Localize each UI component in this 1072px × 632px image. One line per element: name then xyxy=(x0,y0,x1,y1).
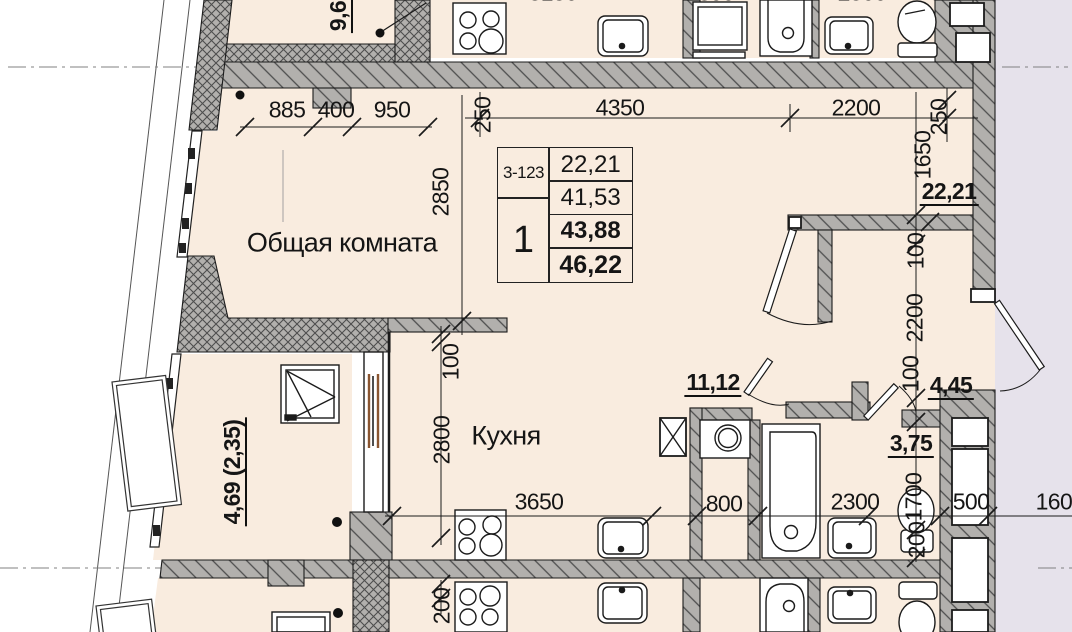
area-label-bathroom: 3,75 xyxy=(888,432,934,458)
dim-500: 500 xyxy=(953,491,990,514)
dim-1700: 1700 xyxy=(903,473,926,522)
washing-machine-icon xyxy=(700,420,750,458)
door-hinge-dot xyxy=(333,608,343,618)
dim-200-bottom: 200 xyxy=(431,588,454,625)
dim-1650: 1650 xyxy=(912,131,935,180)
bathtub-icon xyxy=(760,0,812,56)
area-value: 41,53 xyxy=(548,180,633,215)
window-icon xyxy=(272,612,330,632)
sink-icon xyxy=(598,583,647,623)
floor-plan-page: 3-123 1 22,21 41,53 43,88 46,22 Общая ко… xyxy=(0,0,1072,632)
stove-icon xyxy=(453,3,506,54)
dim-250-left: 250 xyxy=(472,97,495,134)
dim-3650: 3650 xyxy=(515,491,564,514)
apartment-number: 3-123 xyxy=(497,147,550,199)
area-value: 22,21 xyxy=(548,147,633,182)
window-icon xyxy=(281,365,339,423)
dim-400: 400 xyxy=(318,99,355,122)
stove-icon xyxy=(455,582,507,632)
area-label-kitchen: 11,12 xyxy=(684,371,741,397)
dim-4350: 4350 xyxy=(596,97,645,120)
dim-1600: 1600 xyxy=(1036,491,1072,514)
door-hinge-dot xyxy=(332,517,342,527)
sink-icon xyxy=(828,518,876,558)
area-label-living: 22,21 xyxy=(920,180,979,206)
dim-800-clipped: 800 xyxy=(698,0,735,5)
dim-2200: 2200 xyxy=(832,97,881,120)
dim-950: 950 xyxy=(374,99,411,122)
area-value: 46,22 xyxy=(548,247,633,283)
room-count: 1 xyxy=(497,197,550,283)
sink-icon xyxy=(825,17,873,54)
room-label-living: Общая комната xyxy=(247,230,437,257)
washing-machine-icon xyxy=(693,2,747,58)
dim-100-a: 100 xyxy=(905,233,928,270)
dim-100-b: 100 xyxy=(900,356,923,393)
sink-icon xyxy=(598,518,648,558)
dim-2850: 2850 xyxy=(430,168,453,217)
apartment-info-table: 3-123 1 22,21 41,53 43,88 46,22 xyxy=(497,147,633,283)
dim-2200-right: 2200 xyxy=(904,294,927,343)
stove-icon xyxy=(455,510,506,560)
bathtub-icon xyxy=(760,578,808,632)
bathtub-icon xyxy=(762,424,820,558)
vent-shaft-icon xyxy=(660,418,686,456)
toilet-icon xyxy=(898,1,937,57)
sink-icon xyxy=(598,16,648,56)
dim-885: 885 xyxy=(269,99,306,122)
sink-icon xyxy=(828,587,876,623)
area-label-balcony-upper: 9,6 xyxy=(327,0,353,33)
balcony-door-icon xyxy=(364,352,383,512)
dim-800: 800 xyxy=(706,493,743,516)
door-hinge-dot xyxy=(236,91,245,100)
dim-500-clipped: 500 xyxy=(930,0,967,5)
dim-2300: 2300 xyxy=(831,491,880,514)
dim-100-kitchen: 100 xyxy=(440,344,463,381)
dim-3150-clipped: 3150 xyxy=(529,0,578,5)
dim-200-right: 200 xyxy=(906,522,929,559)
area-label-hall: 4,45 xyxy=(928,374,974,400)
area-value: 43,88 xyxy=(548,214,633,249)
door-hinge-dot xyxy=(376,29,385,38)
area-label-loggia: 4,69 (2,35) xyxy=(221,418,247,527)
room-label-kitchen: Кухня xyxy=(471,423,540,450)
dim-2800: 2800 xyxy=(431,416,454,465)
dim-2300-clipped: 2300 xyxy=(838,0,887,5)
